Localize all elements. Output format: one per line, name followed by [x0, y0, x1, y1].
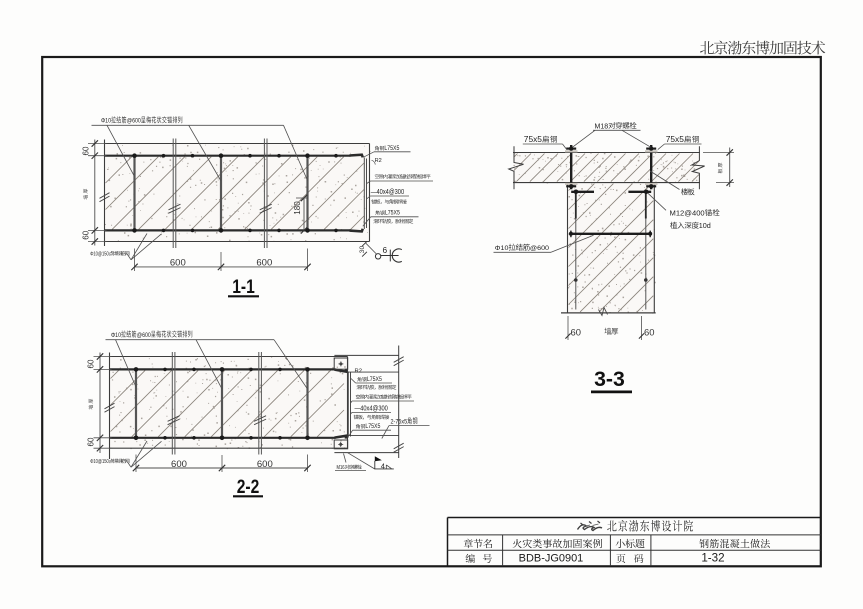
svg-text:@600: @600 [530, 245, 549, 252]
svg-text:R2: R2 [355, 369, 362, 375]
svg-text:600: 600 [256, 258, 272, 269]
svg-text:30: 30 [359, 246, 366, 254]
svg-text:—40x4@300: —40x4@300 [355, 403, 388, 412]
svg-text:60: 60 [81, 230, 90, 239]
svg-text:Φ10@150: Φ10@150 [90, 459, 109, 465]
svg-text:M12@400: M12@400 [670, 208, 705, 217]
svg-text:75x5: 75x5 [666, 134, 685, 144]
svg-text:L75X5: L75X5 [384, 145, 399, 152]
svg-text:600: 600 [171, 459, 187, 470]
svg-text:60: 60 [571, 327, 581, 338]
svg-text:60: 60 [87, 359, 96, 368]
svg-text:L75X5: L75X5 [365, 423, 380, 430]
svg-text:60: 60 [87, 437, 96, 446]
svg-text:2-2: 2-2 [237, 477, 260, 498]
svg-text:Φ10: Φ10 [111, 332, 121, 339]
svg-text:R2: R2 [375, 158, 382, 164]
svg-text:BDB-JG0901: BDB-JG0901 [519, 552, 584, 564]
svg-text:M16: M16 [337, 465, 345, 471]
svg-text:600: 600 [257, 459, 273, 470]
svg-text:L75X5: L75X5 [367, 376, 382, 383]
svg-text:M18: M18 [595, 121, 609, 130]
svg-text:6: 6 [383, 245, 388, 255]
svg-text:@600: @600 [127, 118, 141, 125]
svg-text:600: 600 [170, 258, 186, 269]
svg-text:L75X5: L75X5 [385, 210, 400, 217]
svg-text:3-3: 3-3 [594, 367, 625, 391]
svg-text:75x5: 75x5 [524, 134, 543, 144]
svg-text:Φ10@150: Φ10@150 [90, 251, 109, 257]
svg-text:Φ10: Φ10 [495, 245, 509, 252]
svg-text:—40x4@300: —40x4@300 [371, 187, 404, 196]
svg-text:1-1: 1-1 [232, 277, 255, 298]
svg-text:60: 60 [81, 146, 90, 155]
svg-text:Φ10: Φ10 [101, 118, 111, 125]
svg-text:10d: 10d [699, 221, 711, 230]
svg-text:1-32: 1-32 [701, 551, 724, 564]
svg-text:180: 180 [293, 201, 302, 215]
svg-text:@600: @600 [137, 332, 151, 339]
svg-text:2-75x5: 2-75x5 [391, 419, 408, 426]
svg-text:60: 60 [644, 327, 654, 338]
